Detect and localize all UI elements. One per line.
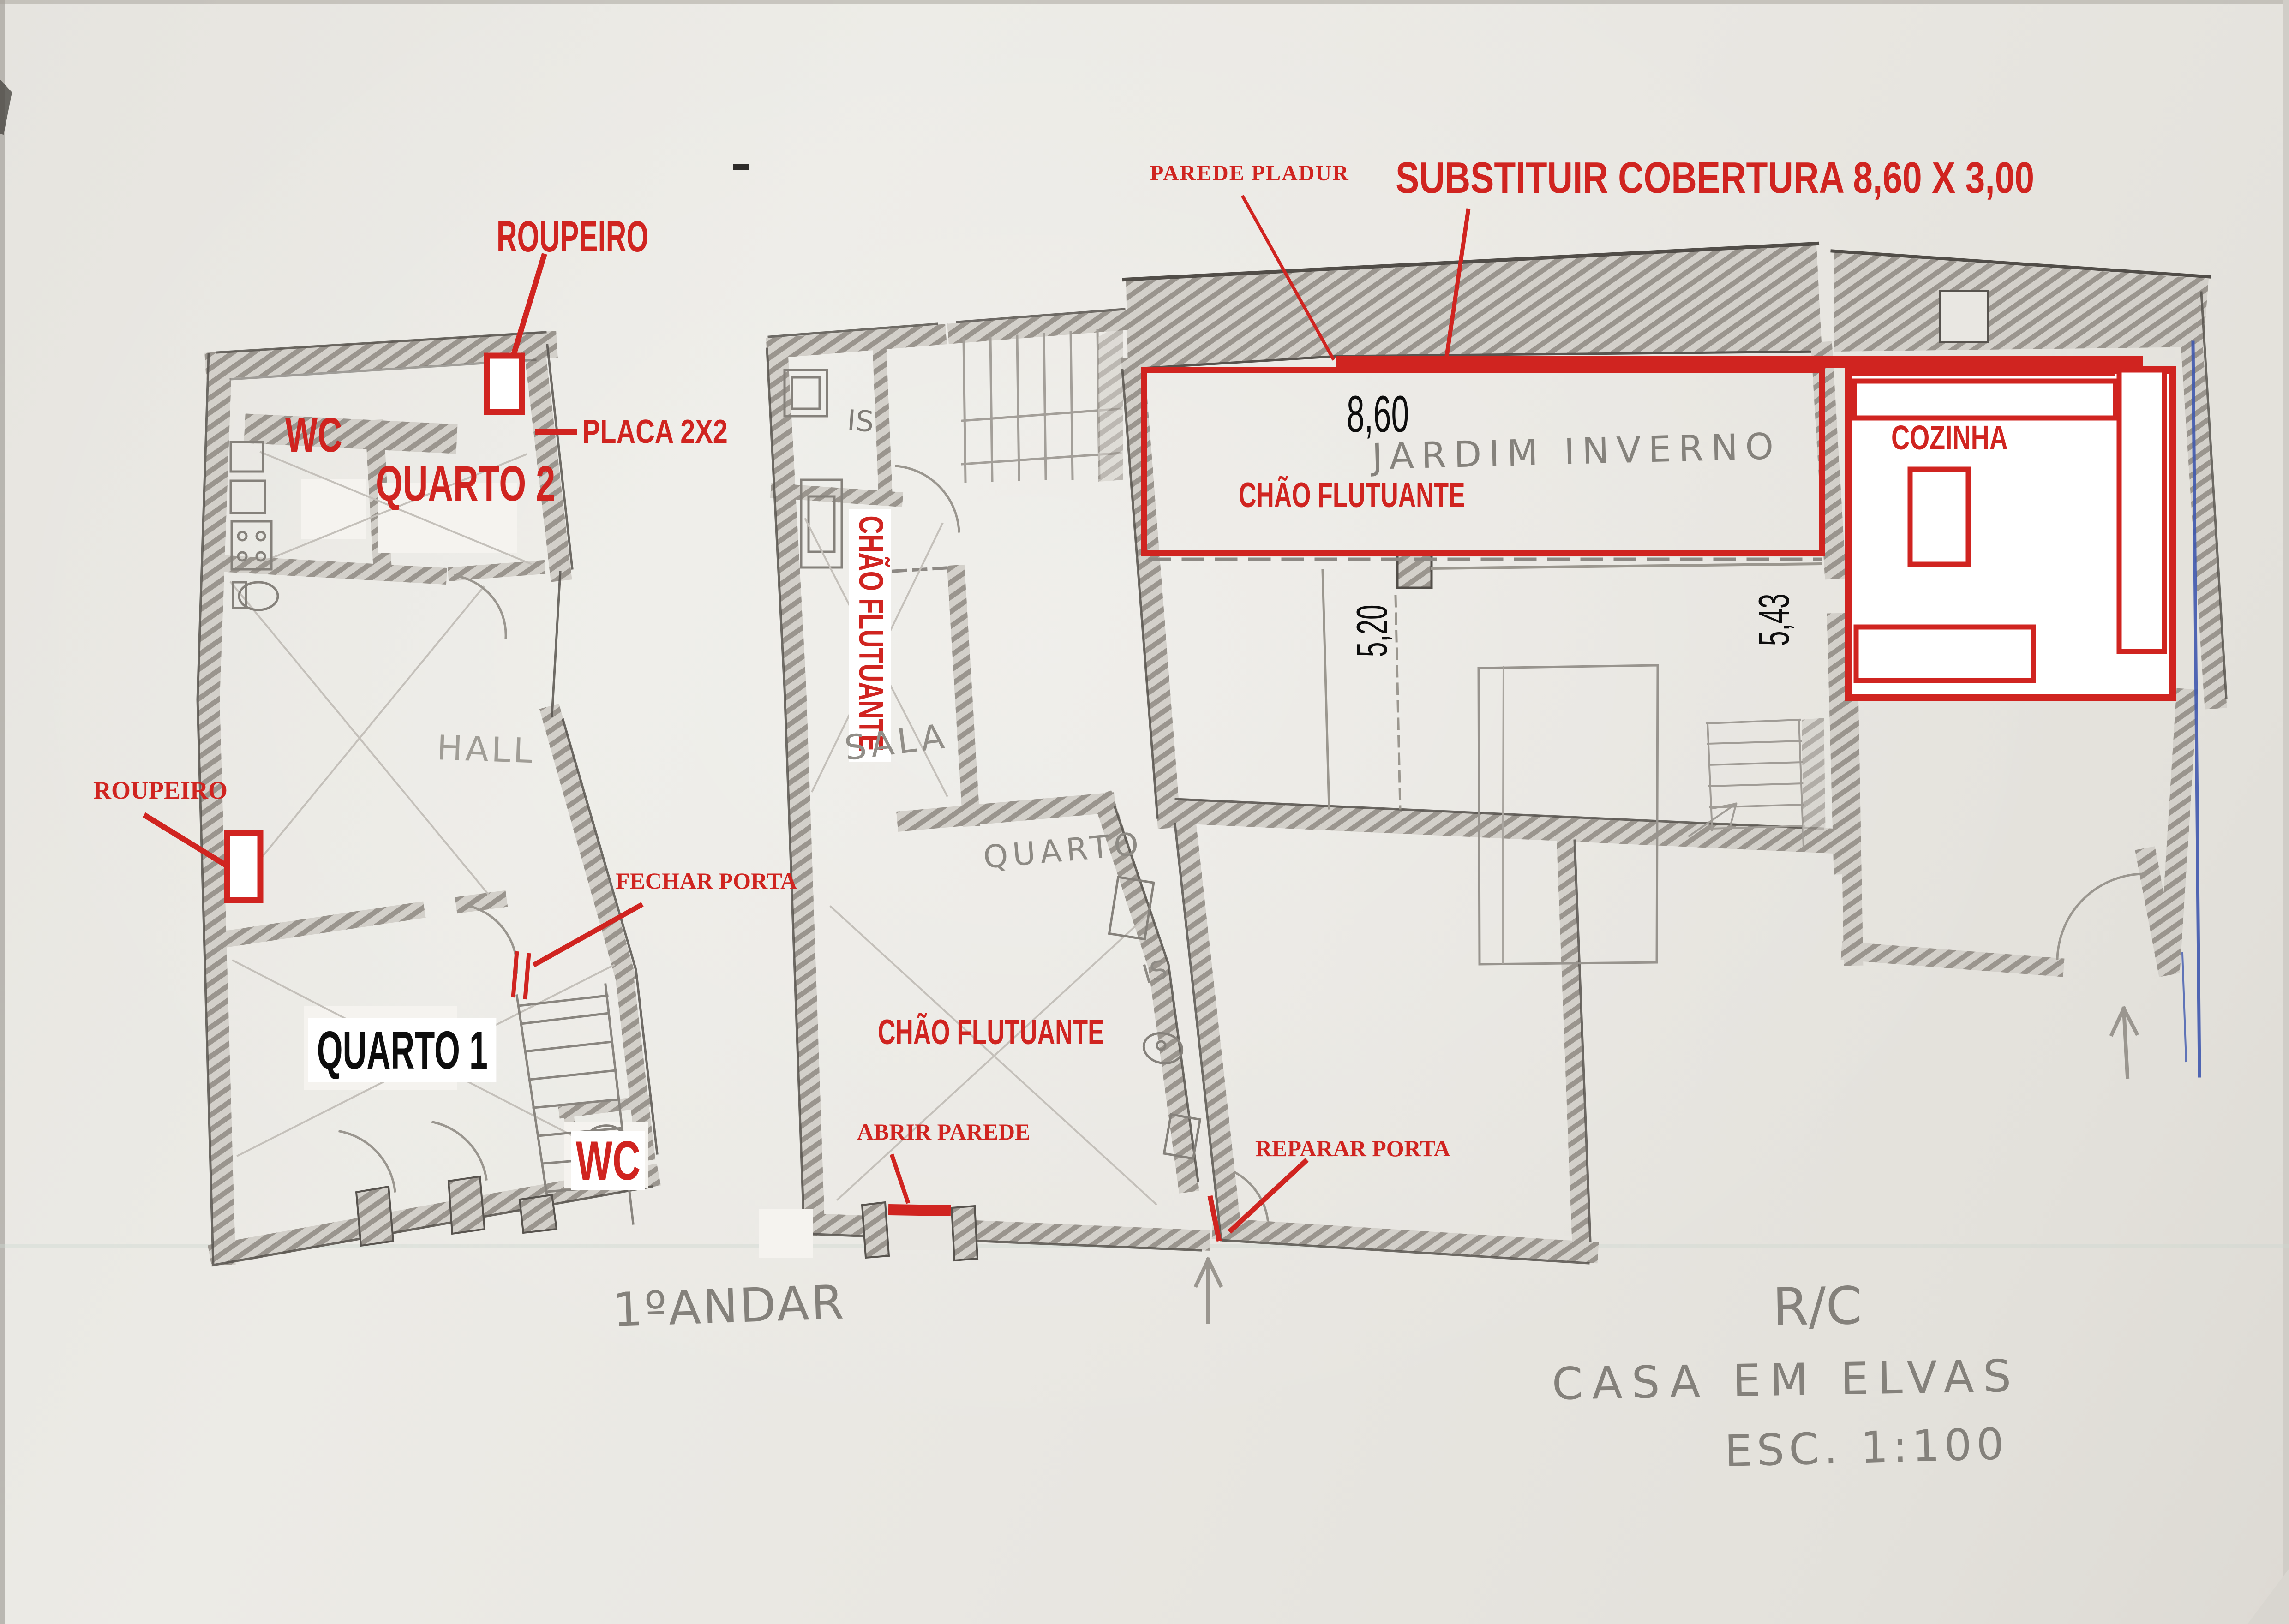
abrir-parede-leader	[892, 1154, 908, 1203]
chao-flutuante-jardim-label: CHÃO FLUTUANTE	[1239, 478, 1465, 513]
scanned-floor-plan-sheet: PAREDE PLADUR SUBSTITUIR COBERTURA 8,60 …	[0, 0, 2289, 1624]
top-roof-band	[1126, 245, 1822, 369]
wc-lower-label: WC	[571, 1131, 645, 1190]
reparar-porta-label: REPARAR PORTA	[1255, 1137, 1450, 1160]
cozinha-counter-top	[1854, 381, 2115, 418]
corner-mark	[0, 79, 12, 135]
cozinha-counter-right	[2119, 370, 2164, 651]
dimension-8-60: 8,60	[1347, 388, 1409, 440]
roupeiro-lower-rect	[227, 833, 260, 900]
cozinha-counter-bottom	[1856, 627, 2033, 681]
placa-2x2-label: PLACA 2X2	[582, 415, 728, 448]
roupeiro-top-label: ROUPEIRO	[497, 215, 648, 259]
floor-title-rc: R/C	[1772, 1280, 1863, 1333]
dimension-5-43: 5,43	[1752, 594, 1796, 646]
stray-pen-dash	[733, 164, 749, 170]
is-upper-handwriting: IS	[846, 406, 875, 436]
scale-note: ESC. 1:100	[1724, 1423, 2009, 1474]
jardim-inverno-handwriting: JARDIM INVERNO	[1372, 429, 1781, 475]
floor-title-1andar: 1ºANDAR	[612, 1279, 846, 1334]
abrir-parede-mark	[888, 1210, 951, 1211]
wc-top-label: WC	[285, 411, 342, 460]
quarto-1-label: QUARTO 1	[308, 1018, 497, 1082]
project-title: CASA EM ELVAS	[1552, 1354, 2021, 1406]
dimension-5-20: 5,20	[1350, 605, 1394, 657]
roupeiro-top-rect	[487, 356, 522, 412]
fechar-porta-label: FECHAR PORTA	[616, 869, 797, 892]
chao-flutuante-lower-label: CHÃO FLUTUANTE	[878, 1015, 1104, 1050]
abrir-parede-label: ABRIR PAREDE	[857, 1120, 1031, 1143]
quarto-2-label: QUARTO 2	[376, 459, 555, 508]
page-fold-shadow	[2247, 1569, 2289, 1624]
cozinha-label: COZINHA	[1891, 421, 2008, 455]
entry-arrow-right	[2112, 1009, 2137, 1077]
parede-pladur-label: PAREDE PLADUR	[1150, 162, 1349, 185]
substituir-cobertura-label: SUBSTITUIR COBERTURA 8,60 X 3,00	[1396, 156, 2034, 200]
entry-arrow-middle	[1196, 1260, 1221, 1322]
hall-handwriting: HALL	[436, 731, 535, 768]
roupeiro-lower-label: ROUPEIRO	[93, 778, 228, 803]
stairwell-grid	[962, 330, 1121, 482]
